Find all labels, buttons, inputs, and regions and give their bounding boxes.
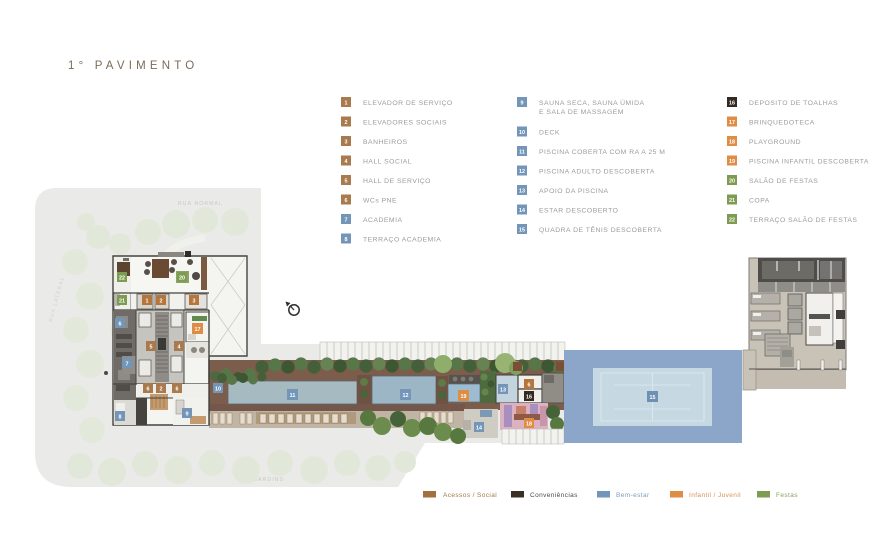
svg-text:3: 3 — [193, 299, 196, 305]
svg-text:ESTAR DESCOBERTO: ESTAR DESCOBERTO — [539, 207, 618, 214]
svg-text:18: 18 — [526, 422, 532, 428]
svg-text:12: 12 — [519, 169, 525, 175]
svg-text:15: 15 — [519, 228, 525, 234]
svg-text:9: 9 — [186, 412, 189, 418]
svg-text:8: 8 — [119, 415, 122, 421]
svg-text:20: 20 — [179, 276, 185, 282]
svg-text:HALL SOCIAL: HALL SOCIAL — [363, 158, 412, 165]
svg-text:QUADRA DE TÊNIS DESCOBERTA: QUADRA DE TÊNIS DESCOBERTA — [539, 225, 662, 234]
svg-text:7: 7 — [126, 362, 129, 368]
svg-text:E SALA DE MASSAGEM: E SALA DE MASSAGEM — [539, 109, 624, 116]
svg-text:10: 10 — [215, 387, 221, 393]
svg-text:9: 9 — [521, 101, 524, 107]
svg-text:Bem-estar: Bem-estar — [616, 492, 650, 499]
svg-text:RUA NORMAL: RUA NORMAL — [178, 201, 223, 207]
svg-text:SALÃO DE FESTAS: SALÃO DE FESTAS — [749, 176, 818, 185]
svg-text:PLAYGROUND: PLAYGROUND — [749, 139, 801, 146]
svg-text:6: 6 — [345, 198, 348, 204]
svg-text:17: 17 — [195, 327, 201, 333]
svg-text:2: 2 — [160, 387, 163, 393]
svg-text:6: 6 — [119, 322, 122, 328]
svg-text:22: 22 — [729, 218, 735, 224]
svg-text:6: 6 — [528, 383, 531, 389]
svg-text:TERRAÇO SALÃO DE FESTAS: TERRAÇO SALÃO DE FESTAS — [749, 215, 857, 224]
svg-text:Acessos / Social: Acessos / Social — [443, 492, 497, 499]
svg-text:PISCINA INFANTIL DESCOBERTA: PISCINA INFANTIL DESCOBERTA — [749, 158, 869, 165]
svg-text:5: 5 — [345, 179, 348, 185]
svg-text:ACADEMIA: ACADEMIA — [363, 217, 403, 224]
svg-text:21: 21 — [119, 299, 125, 305]
svg-text:5: 5 — [150, 345, 153, 351]
svg-text:1: 1 — [146, 299, 149, 305]
svg-text:HALL DE SERVIÇO: HALL DE SERVIÇO — [363, 178, 431, 185]
svg-text:14: 14 — [476, 426, 482, 432]
svg-text:6: 6 — [147, 387, 150, 393]
svg-text:12: 12 — [403, 393, 409, 399]
svg-text:6: 6 — [176, 387, 179, 393]
svg-text:16: 16 — [526, 395, 532, 401]
svg-text:13: 13 — [500, 388, 506, 394]
svg-text:Conveniências: Conveniências — [530, 492, 578, 499]
svg-text:22: 22 — [119, 276, 125, 282]
svg-text:SAUNA SECA, SAUNA ÚMIDA: SAUNA SECA, SAUNA ÚMIDA — [539, 98, 645, 107]
svg-text:15: 15 — [650, 395, 656, 401]
svg-text:1: 1 — [345, 101, 348, 107]
svg-text:19: 19 — [729, 159, 735, 165]
svg-text:16: 16 — [729, 101, 735, 107]
svg-text:14: 14 — [519, 208, 525, 214]
svg-text:11: 11 — [519, 150, 525, 156]
svg-text:20: 20 — [729, 179, 735, 185]
svg-text:APOIO DA PISCINA: APOIO DA PISCINA — [539, 188, 609, 195]
svg-text:ELEVADORES SOCIAIS: ELEVADORES SOCIAIS — [363, 119, 447, 126]
svg-text:BANHEIROS: BANHEIROS — [363, 139, 408, 146]
svg-text:ELEVADOR DE SERVIÇO: ELEVADOR DE SERVIÇO — [363, 100, 453, 107]
svg-text:21: 21 — [729, 198, 735, 204]
svg-text:10: 10 — [519, 130, 525, 136]
svg-text:1° PAVIMENTO: 1° PAVIMENTO — [68, 60, 198, 72]
svg-text:13: 13 — [519, 189, 525, 195]
svg-text:TERRAÇO ACADEMIA: TERRAÇO ACADEMIA — [363, 236, 441, 243]
svg-text:7: 7 — [345, 218, 348, 224]
svg-text:Infantil / Juvenil: Infantil / Juvenil — [689, 492, 741, 499]
svg-text:3: 3 — [345, 140, 348, 146]
svg-text:BRINQUEDOTECA: BRINQUEDOTECA — [749, 119, 815, 126]
svg-text:COPA: COPA — [749, 197, 770, 204]
svg-text:Festas: Festas — [776, 492, 798, 499]
svg-text:4: 4 — [178, 345, 181, 351]
svg-text:17: 17 — [729, 120, 735, 126]
svg-text:PISCINA COBERTA COM RA A 25 M: PISCINA COBERTA COM RA A 25 M — [539, 149, 665, 156]
svg-text:8: 8 — [345, 237, 348, 243]
svg-text:11: 11 — [290, 393, 296, 399]
svg-text:19: 19 — [461, 394, 467, 400]
svg-text:DECK: DECK — [539, 129, 560, 136]
svg-text:2: 2 — [160, 299, 163, 305]
svg-text:4: 4 — [345, 159, 348, 165]
svg-text:PISCINA ADULTO DESCOBERTA: PISCINA ADULTO DESCOBERTA — [539, 168, 655, 175]
svg-text:WCs PNE: WCs PNE — [363, 197, 397, 204]
svg-text:2: 2 — [345, 120, 348, 126]
svg-text:DEPOSITO DE TOALHAS: DEPOSITO DE TOALHAS — [749, 100, 838, 107]
svg-text:18: 18 — [729, 140, 735, 146]
